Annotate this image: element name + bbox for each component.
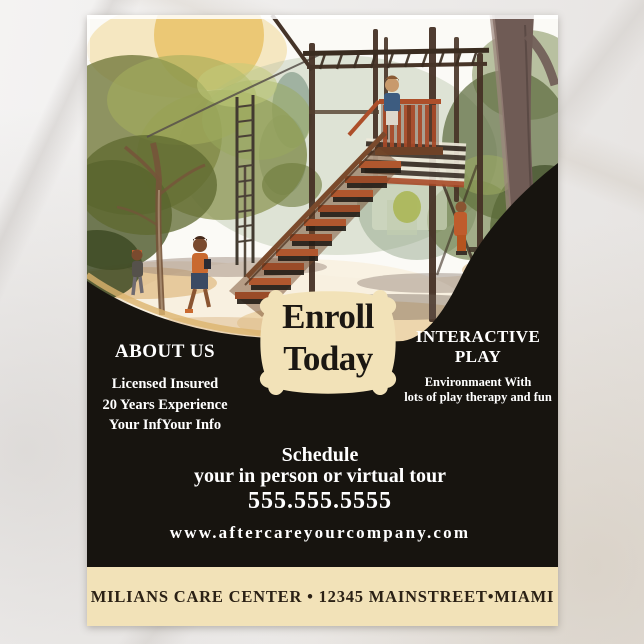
about-section: ABOUT US Licensed Insured 20 Years Exper…	[89, 341, 241, 436]
schedule-heading: Schedule	[87, 445, 553, 466]
badge-text: Enroll Today	[253, 296, 403, 380]
product-photo-marble-background: Enroll Today ABOUT US Licensed Insured 2…	[0, 0, 644, 644]
website-url: www.aftercareyourcompany.com	[87, 523, 553, 543]
schedule-subheading: your in person or virtual tour	[87, 466, 553, 487]
interactive-line2: lots of play therapy and fun	[404, 390, 552, 404]
interactive-heading-line2: PLAY	[393, 347, 563, 367]
about-line: Licensed Insured	[89, 374, 241, 395]
flyer: Enroll Today ABOUT US Licensed Insured 2…	[87, 15, 558, 626]
interactive-line1: Environmaent With	[425, 375, 532, 389]
enroll-badge: Enroll Today	[253, 286, 403, 399]
interactive-body: Environmaent With lots of play therapy a…	[393, 375, 563, 405]
interactive-heading-line1: INTERACTIVE	[393, 327, 563, 347]
footer-text: MILIANS CARE CENTER • 12345 MAINSTREET•M…	[91, 587, 554, 607]
badge-line1: Enroll	[253, 296, 403, 338]
badge-line2: Today	[253, 338, 403, 380]
interactive-play-section: INTERACTIVE PLAY Environmaent With lots …	[393, 327, 563, 405]
schedule-section: Schedule your in person or virtual tour …	[87, 445, 553, 543]
phone-number: 555.555.5555	[87, 487, 553, 516]
about-heading: ABOUT US	[89, 341, 241, 363]
about-line: 20 Years Experience	[89, 395, 241, 416]
about-line: Your InfYour Info	[89, 415, 241, 436]
footer-band: MILIANS CARE CENTER • 12345 MAINSTREET•M…	[87, 567, 558, 626]
